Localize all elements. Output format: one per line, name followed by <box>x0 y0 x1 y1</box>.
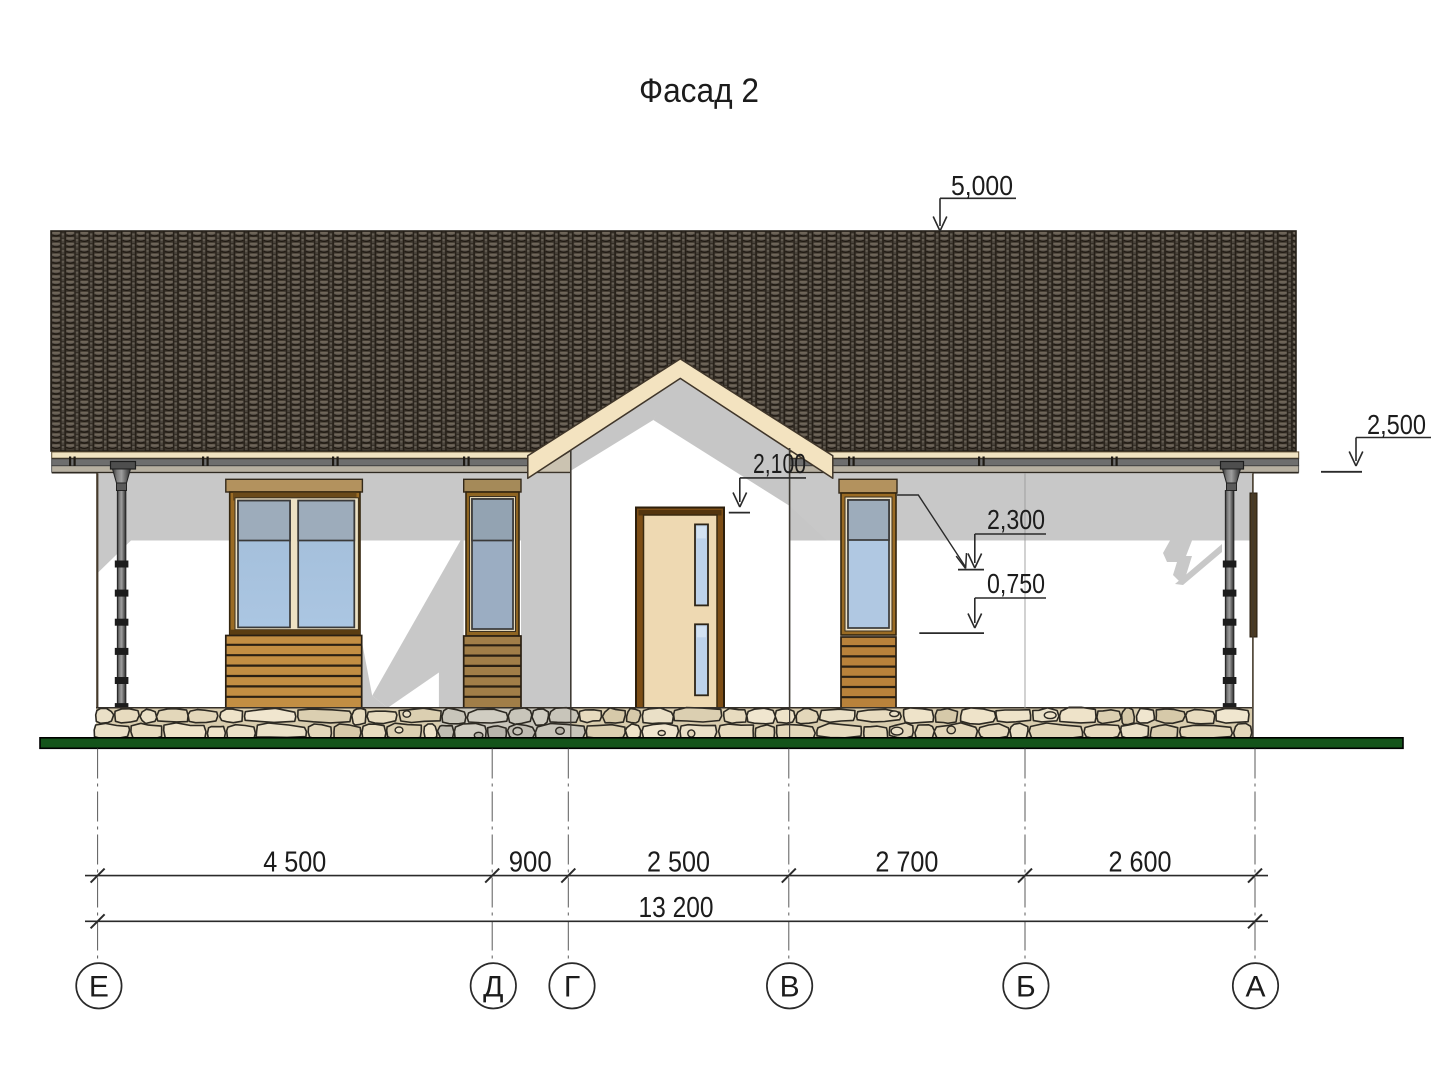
svg-text:2,100: 2,100 <box>753 448 806 479</box>
svg-text:Д: Д <box>483 971 503 1004</box>
svg-text:5,000: 5,000 <box>951 170 1013 201</box>
svg-text:4 500: 4 500 <box>263 847 326 879</box>
svg-text:2,500: 2,500 <box>1367 409 1426 440</box>
svg-text:А: А <box>1245 971 1265 1004</box>
svg-text:2 500: 2 500 <box>647 847 710 879</box>
svg-text:В: В <box>780 971 800 1004</box>
svg-text:Б: Б <box>1016 971 1036 1004</box>
svg-text:2 600: 2 600 <box>1109 847 1172 879</box>
svg-text:2 700: 2 700 <box>875 847 938 879</box>
svg-text:0,750: 0,750 <box>987 568 1045 599</box>
svg-text:Фасад 2: Фасад 2 <box>639 72 759 110</box>
svg-text:13 200: 13 200 <box>639 892 714 924</box>
svg-text:Г: Г <box>564 971 580 1004</box>
svg-text:Е: Е <box>89 971 109 1004</box>
svg-text:900: 900 <box>509 847 552 879</box>
svg-text:2,300: 2,300 <box>987 504 1045 535</box>
